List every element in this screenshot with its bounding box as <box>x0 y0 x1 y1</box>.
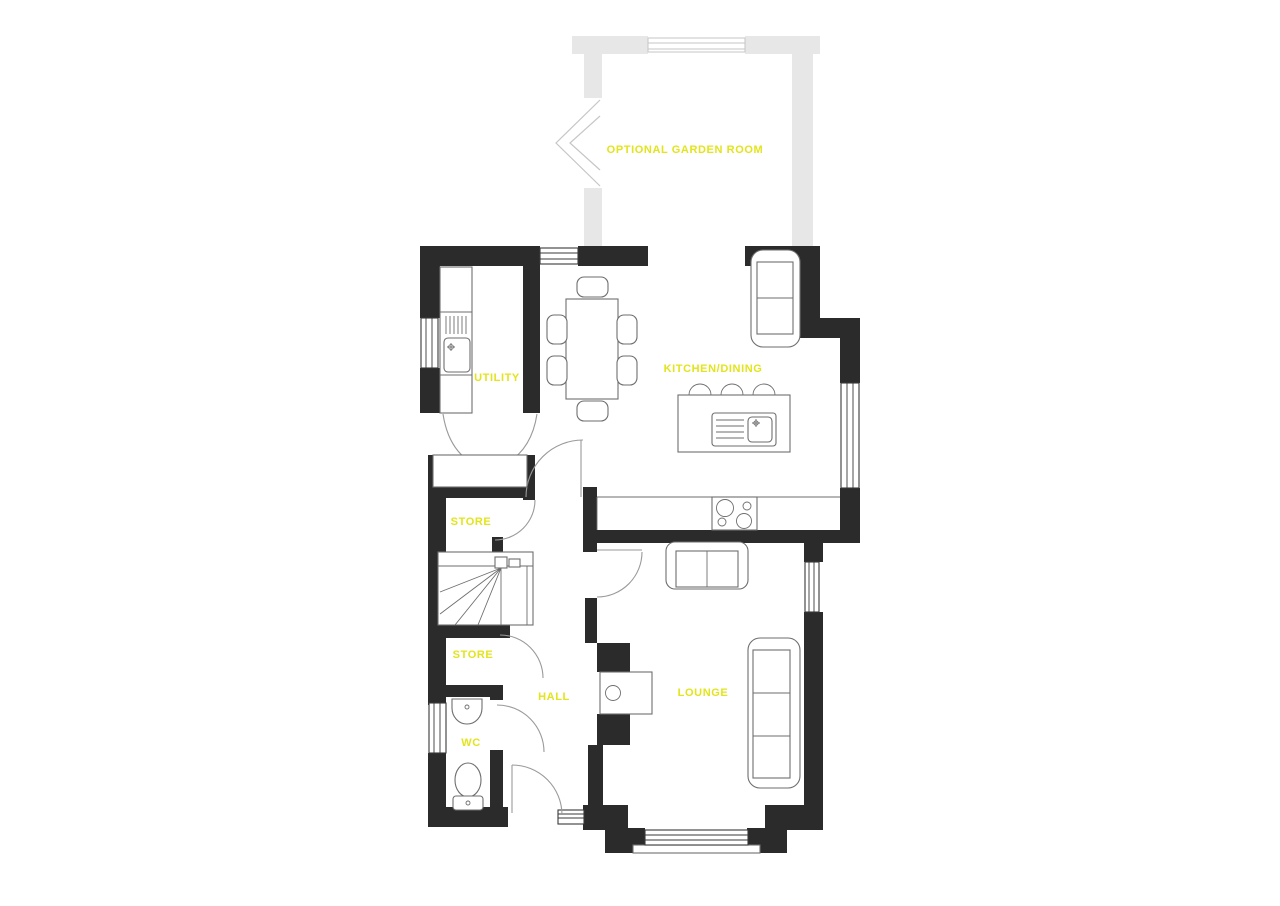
room-label-lounge: LOUNGE <box>678 687 729 699</box>
newel-post <box>509 559 520 567</box>
front-door-swing <box>512 765 562 815</box>
wall <box>523 265 540 413</box>
dining-table-set <box>547 277 637 421</box>
wall <box>765 805 823 830</box>
room-label-hall: HALL <box>538 691 570 703</box>
french-door-chevron <box>556 100 600 186</box>
optional-garden-room <box>556 36 820 248</box>
dining-chair <box>577 401 608 421</box>
store-shelf <box>433 455 527 487</box>
store-upper-door <box>495 500 535 540</box>
wall <box>597 643 630 672</box>
wall <box>490 750 503 808</box>
wall <box>583 805 628 830</box>
wall <box>597 714 630 745</box>
wc-door <box>497 705 544 752</box>
lounge-door-swing <box>597 552 642 597</box>
utility-counter <box>440 267 472 413</box>
wall <box>438 487 530 498</box>
wall <box>804 543 823 562</box>
bar-stool <box>721 384 743 395</box>
kitchen-island <box>678 384 790 452</box>
window-wc-left <box>429 703 446 753</box>
sofa-cushions <box>753 650 790 778</box>
wall <box>804 612 823 805</box>
media-unit <box>600 672 652 714</box>
wall <box>593 530 840 543</box>
bar-stool <box>689 384 711 395</box>
wall <box>584 188 602 248</box>
armchair-kitchen <box>751 250 800 347</box>
room-label-wc: WC <box>461 737 481 749</box>
dining-table <box>566 299 618 399</box>
wash-basin <box>452 699 482 724</box>
utility-sink <box>444 338 470 372</box>
dining-chair <box>617 315 637 344</box>
wall <box>490 685 503 700</box>
room-label-garden-room: OPTIONAL GARDEN ROOM <box>607 144 764 156</box>
window-lounge-right <box>805 562 819 612</box>
dining-chair <box>577 277 608 297</box>
wall <box>840 338 860 383</box>
window-utility-left <box>421 318 438 368</box>
wall <box>745 36 820 54</box>
wall <box>428 753 446 809</box>
bar-stool <box>753 384 775 395</box>
room-label-store-upper: STORE <box>451 516 492 528</box>
wall <box>584 36 602 98</box>
wall <box>420 368 440 413</box>
garden-room-window <box>648 38 745 52</box>
window-top-kitchen <box>540 248 578 264</box>
window-kitchen-right <box>841 383 859 488</box>
kitchen-counter <box>597 497 840 530</box>
dining-chair <box>547 315 567 344</box>
wall <box>420 246 440 318</box>
staircase <box>438 552 533 625</box>
wall <box>840 488 860 543</box>
toilet-cistern <box>453 796 483 810</box>
room-label-store-lower: STORE <box>453 649 494 661</box>
island-sink-bowl <box>748 417 772 442</box>
wall <box>578 246 648 266</box>
dining-chair <box>617 356 637 385</box>
dining-chair <box>547 356 567 385</box>
wc-fixtures <box>452 699 483 810</box>
room-label-utility: UTILITY <box>474 372 520 384</box>
wall <box>585 598 597 643</box>
window <box>648 38 745 52</box>
floor-plan-page: OPTIONAL GARDEN ROOM UTILITY KITCHEN/DIN… <box>0 0 1280 906</box>
floor-plan-svg: OPTIONAL GARDEN ROOM UTILITY KITCHEN/DIN… <box>0 0 1280 906</box>
wall <box>572 36 648 54</box>
wall <box>792 54 813 248</box>
wall <box>438 685 497 697</box>
room-label-kitchen-dining: KITCHEN/DINING <box>664 363 763 375</box>
toilet-bowl <box>455 763 481 797</box>
newel-post <box>495 557 507 568</box>
bay-window-lounge <box>633 830 760 853</box>
store-lower-door <box>500 635 543 678</box>
wall <box>588 745 603 807</box>
wall <box>796 318 860 338</box>
wall <box>583 487 597 552</box>
